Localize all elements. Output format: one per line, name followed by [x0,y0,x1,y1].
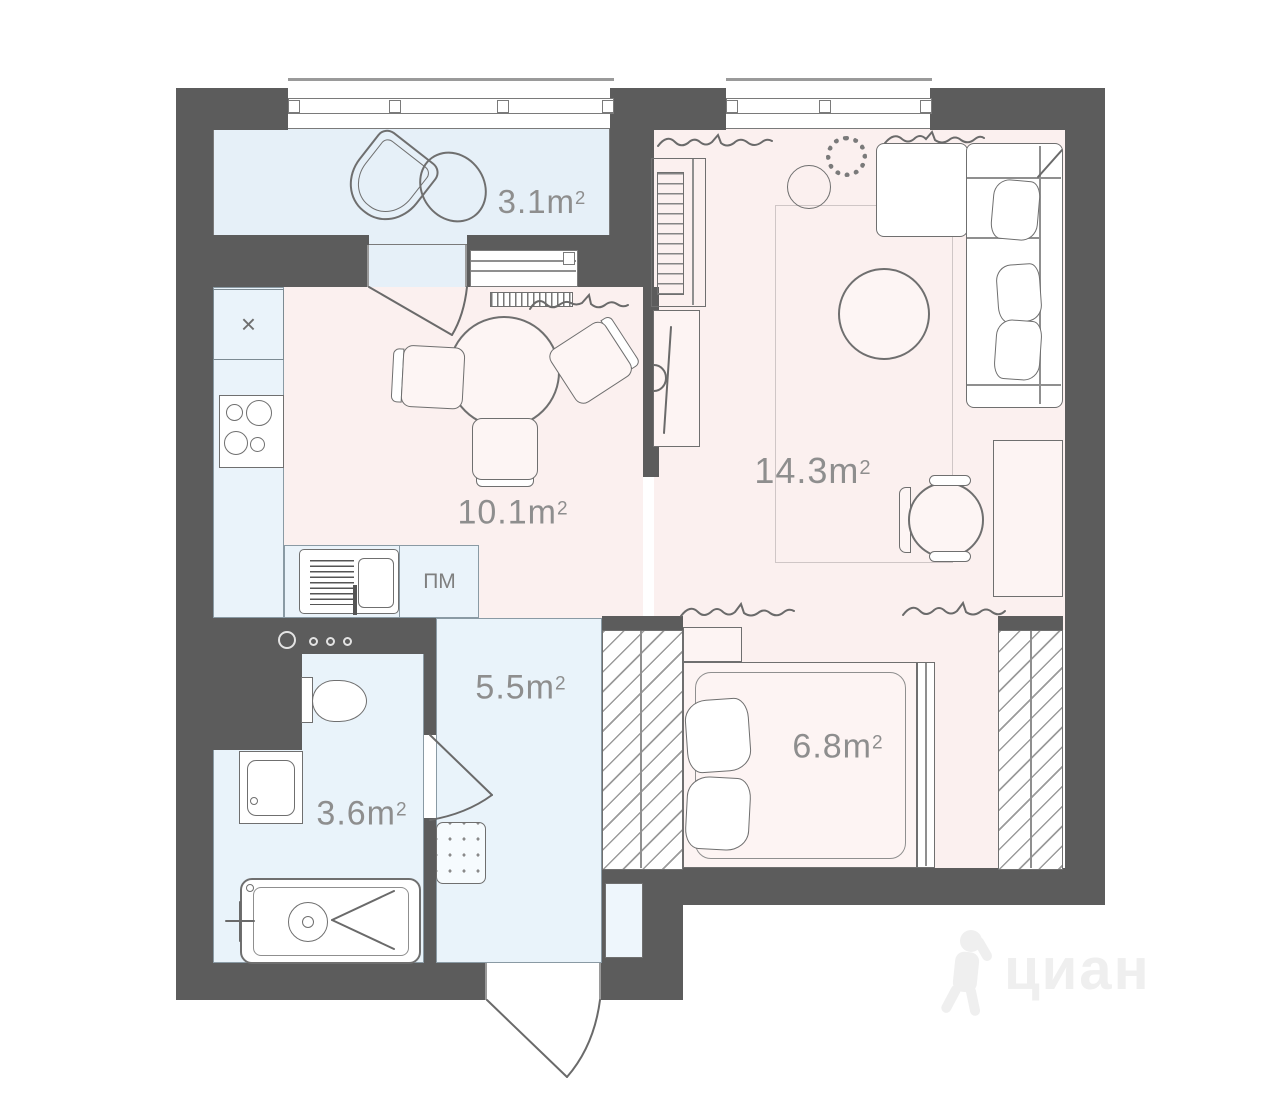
floor-plan: × ПМ [0,0,1280,1120]
watermark-person-leg [965,985,981,1016]
entrance-door-arc [567,1000,600,1077]
stove-burner [226,404,243,421]
living-room-area-value: 14.3m [754,450,859,491]
window-mullion [920,100,932,113]
shoe-cabinet [605,883,643,958]
wall-bathroom-shaft [213,652,302,750]
bathroom-area-sup: 2 [396,800,408,821]
washing-machine-knob [250,797,258,805]
bathtub-inner [253,887,409,956]
sink-faucet [353,585,357,615]
wall-bedroom-bottom [683,868,1105,905]
balcony-area-sup: 2 [575,187,586,208]
wall-balcony-kitchen-left [213,235,369,287]
balcony-door-jamb-left [367,245,369,287]
entrance-door-jamb-left [485,963,487,1000]
dishwasher-label: ПМ [423,570,456,594]
decor-wreath [826,136,867,177]
coffee-table [838,268,930,360]
window-mullion [726,100,738,113]
desk-chair-armrest [929,551,971,562]
kitchen-sink-unit [299,549,399,614]
desk-chair-seat [908,482,984,558]
living-room-area-sup: 2 [859,457,871,479]
entrance-door-jamb-right [599,963,601,1000]
window-inner-line [471,270,576,272]
window-mullion [389,100,401,113]
nightstand [683,627,742,662]
wall-hook [343,637,352,646]
balcony-window [288,98,614,114]
washing-machine [239,751,303,824]
sofa-arm-line-bottom [967,384,1061,386]
bedroom-area-value: 6.8m [792,728,872,766]
dining-chair-bottom [466,416,542,488]
kitchen-area-value: 10.1m [457,494,557,532]
bathroom-area-label: 3.6m2 [316,795,407,834]
wall-wardrobe-right-top [998,616,1063,630]
sofa-pillow [995,263,1043,324]
washing-machine-door [247,760,295,816]
toilet-bowl [312,680,367,722]
bathtub-drain-center [302,916,314,928]
plant-pot [787,165,831,209]
wardrobe-right [998,630,1063,870]
dining-chair-left [390,340,468,414]
desk [993,440,1063,597]
wardrobe-divider [640,631,642,868]
bedroom-area-sup: 2 [872,733,884,754]
stove [219,395,284,468]
kitchen-wall-shelf [490,292,573,307]
window-mullion [602,100,614,113]
sofa-arm-line-top [967,177,1061,179]
chair-seat [472,418,538,480]
watermark-brand-text: циан [1004,936,1151,1003]
bed-footboard [917,662,935,868]
hallway-area-label: 5.5m2 [475,669,566,708]
wall-kitchen-bathroom [213,618,436,654]
dishwasher: ПМ [399,545,479,618]
sink-drainboard [310,560,354,605]
desk-chair [896,470,992,566]
kitchen-area-sup: 2 [557,499,569,520]
sink-cross-symbol: × [241,309,256,340]
kitchen-balcony-window [470,250,578,287]
wall-hook [326,637,335,646]
wall-bathroom-right-lower [424,818,436,963]
shelving-unit [651,158,706,307]
wall-balcony-living-column [610,130,654,287]
window-mullion [819,100,831,113]
chair-seat [400,345,465,410]
bathtub [240,878,421,964]
desk-chair-armrest [929,475,971,486]
stove-burner [250,437,265,452]
stove-burner [246,400,272,426]
window-mullion [563,252,575,265]
wall-bathroom-right-upper [424,652,436,735]
living-room-area-label: 14.3m2 [754,450,871,492]
wall-bottom-right [600,963,683,1000]
window-mullion [288,100,300,113]
wall-wardrobe-left-top [602,616,683,630]
balcony-area-value: 3.1m [498,183,575,220]
stove-burner [224,431,248,455]
wall-top-left [176,88,288,130]
tv-stand [653,310,700,447]
wall-right [1065,88,1105,905]
balcony-door-jamb-right [465,245,467,287]
bed-pillow [684,775,752,851]
bathtub-overflow [246,884,254,892]
sofa-pillow [989,178,1041,242]
shelving-divider [692,159,694,305]
balcony-area-label: 3.1m2 [498,183,587,221]
bed-pillow [684,697,753,774]
wardrobe-left [602,630,683,870]
wardrobe-divider [1030,631,1032,868]
window-inner-line [471,260,576,262]
wall-top-middle [610,88,726,130]
entrance-door-leaf [487,1000,567,1077]
doormat [436,822,486,884]
sofa-pillow [993,318,1043,381]
footboard-line [925,663,927,866]
kitchen-sink-cabinet: × [213,289,284,360]
living-room-window [726,98,932,114]
hallway-area-sup: 2 [555,674,567,695]
wall-bottom-left [176,963,487,1000]
wall-hook-large [278,631,296,649]
sofa-chaise [876,143,968,237]
watermark-person-leg [940,983,963,1014]
wall-left [176,128,213,1000]
hallway-area-value: 5.5m [475,669,555,707]
window-mullion [497,100,509,113]
kitchen-area-label: 10.1m2 [457,494,568,533]
watermark: циан [938,928,1168,1020]
shelving-slats [657,172,684,295]
sink-basin [358,558,394,608]
bathroom-area-value: 3.6m [316,795,396,833]
bedroom-area-label: 6.8m2 [792,728,883,767]
facade-line-left [288,78,614,81]
wall-hook [309,637,318,646]
facade-line-right [726,78,932,81]
balcony-door-passage-floor [369,245,467,287]
